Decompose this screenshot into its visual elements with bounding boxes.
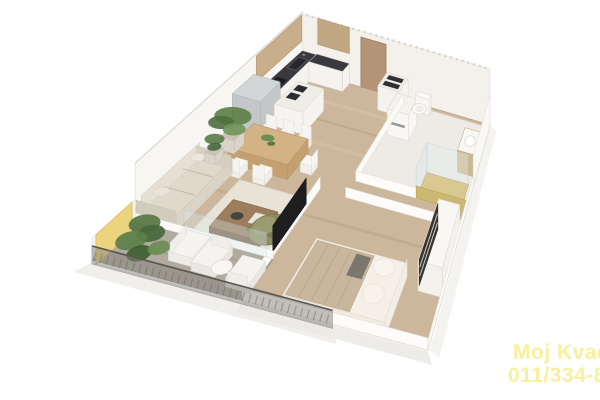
watermark-line1: Moj Kvad bbox=[513, 341, 600, 364]
watermark-line2: 011/334-8 bbox=[508, 364, 600, 387]
sofa-pillow bbox=[191, 153, 205, 161]
floorplan-page: Moj Kvad 011/334-8 bbox=[0, 0, 600, 400]
vanity-basin bbox=[465, 136, 475, 147]
bed-pillow bbox=[374, 259, 395, 277]
watermark: Moj Kvad 011/334-8 bbox=[513, 341, 600, 387]
floorplan-svg bbox=[0, 0, 600, 400]
